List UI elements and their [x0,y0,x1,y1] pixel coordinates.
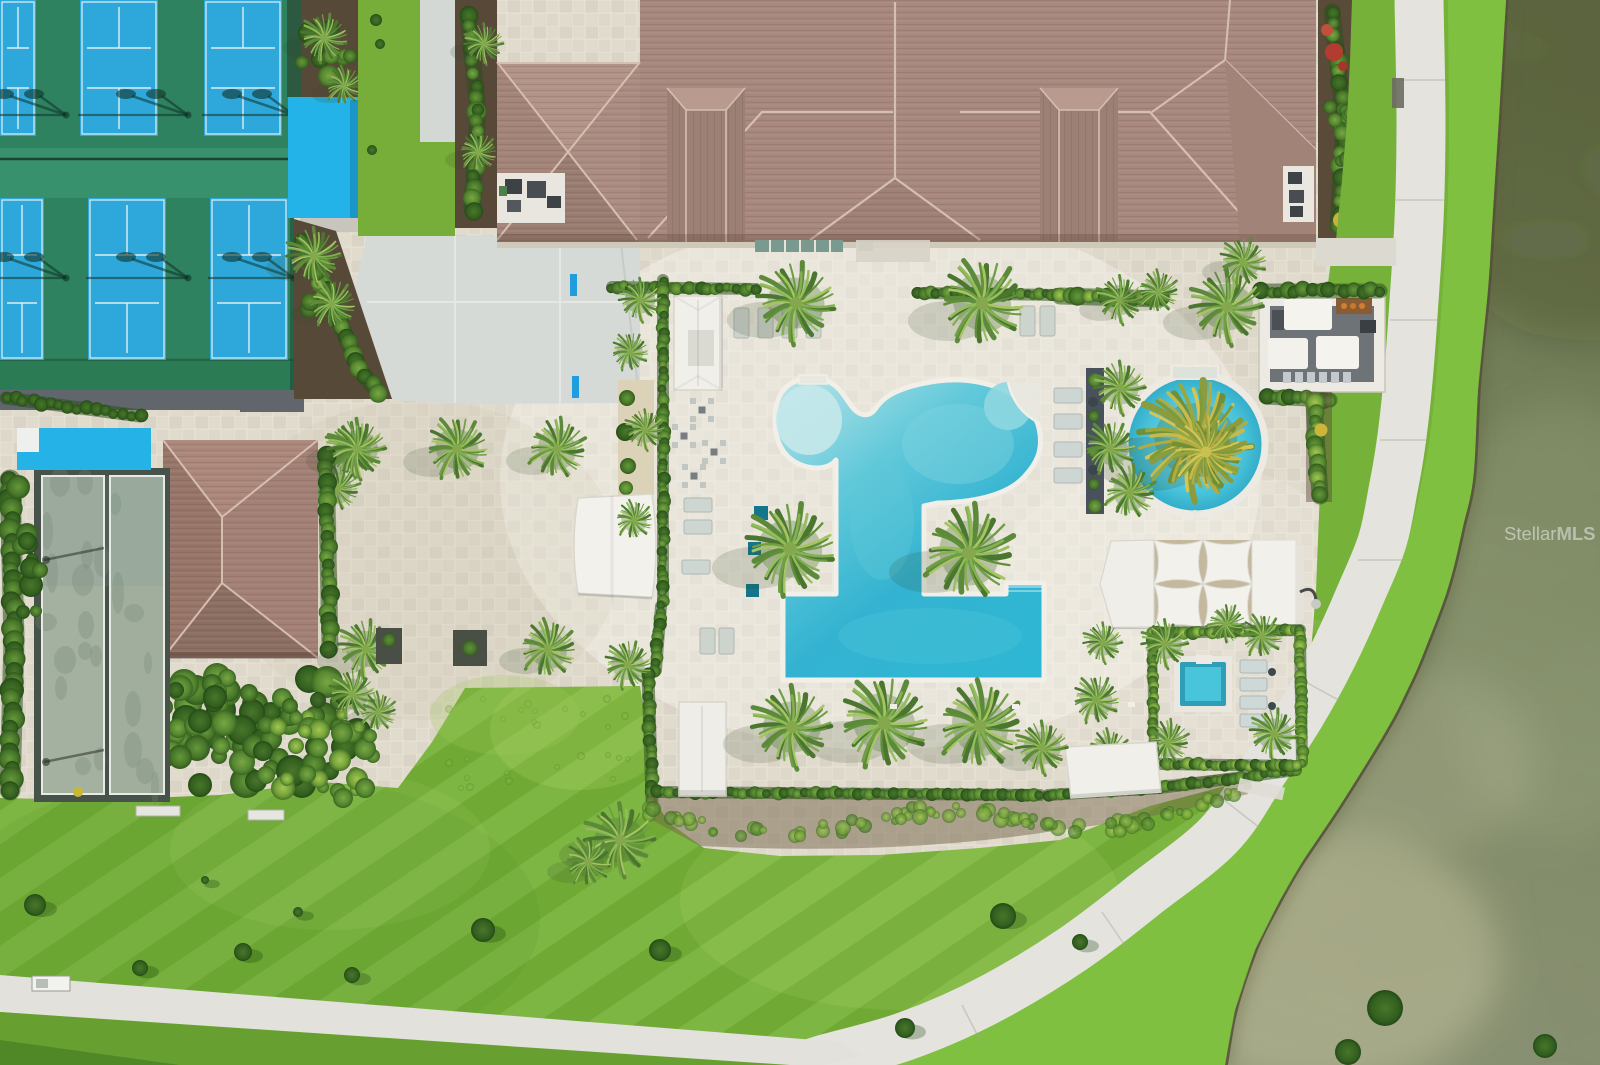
svg-text:StellarMLS: StellarMLS [1504,523,1596,544]
